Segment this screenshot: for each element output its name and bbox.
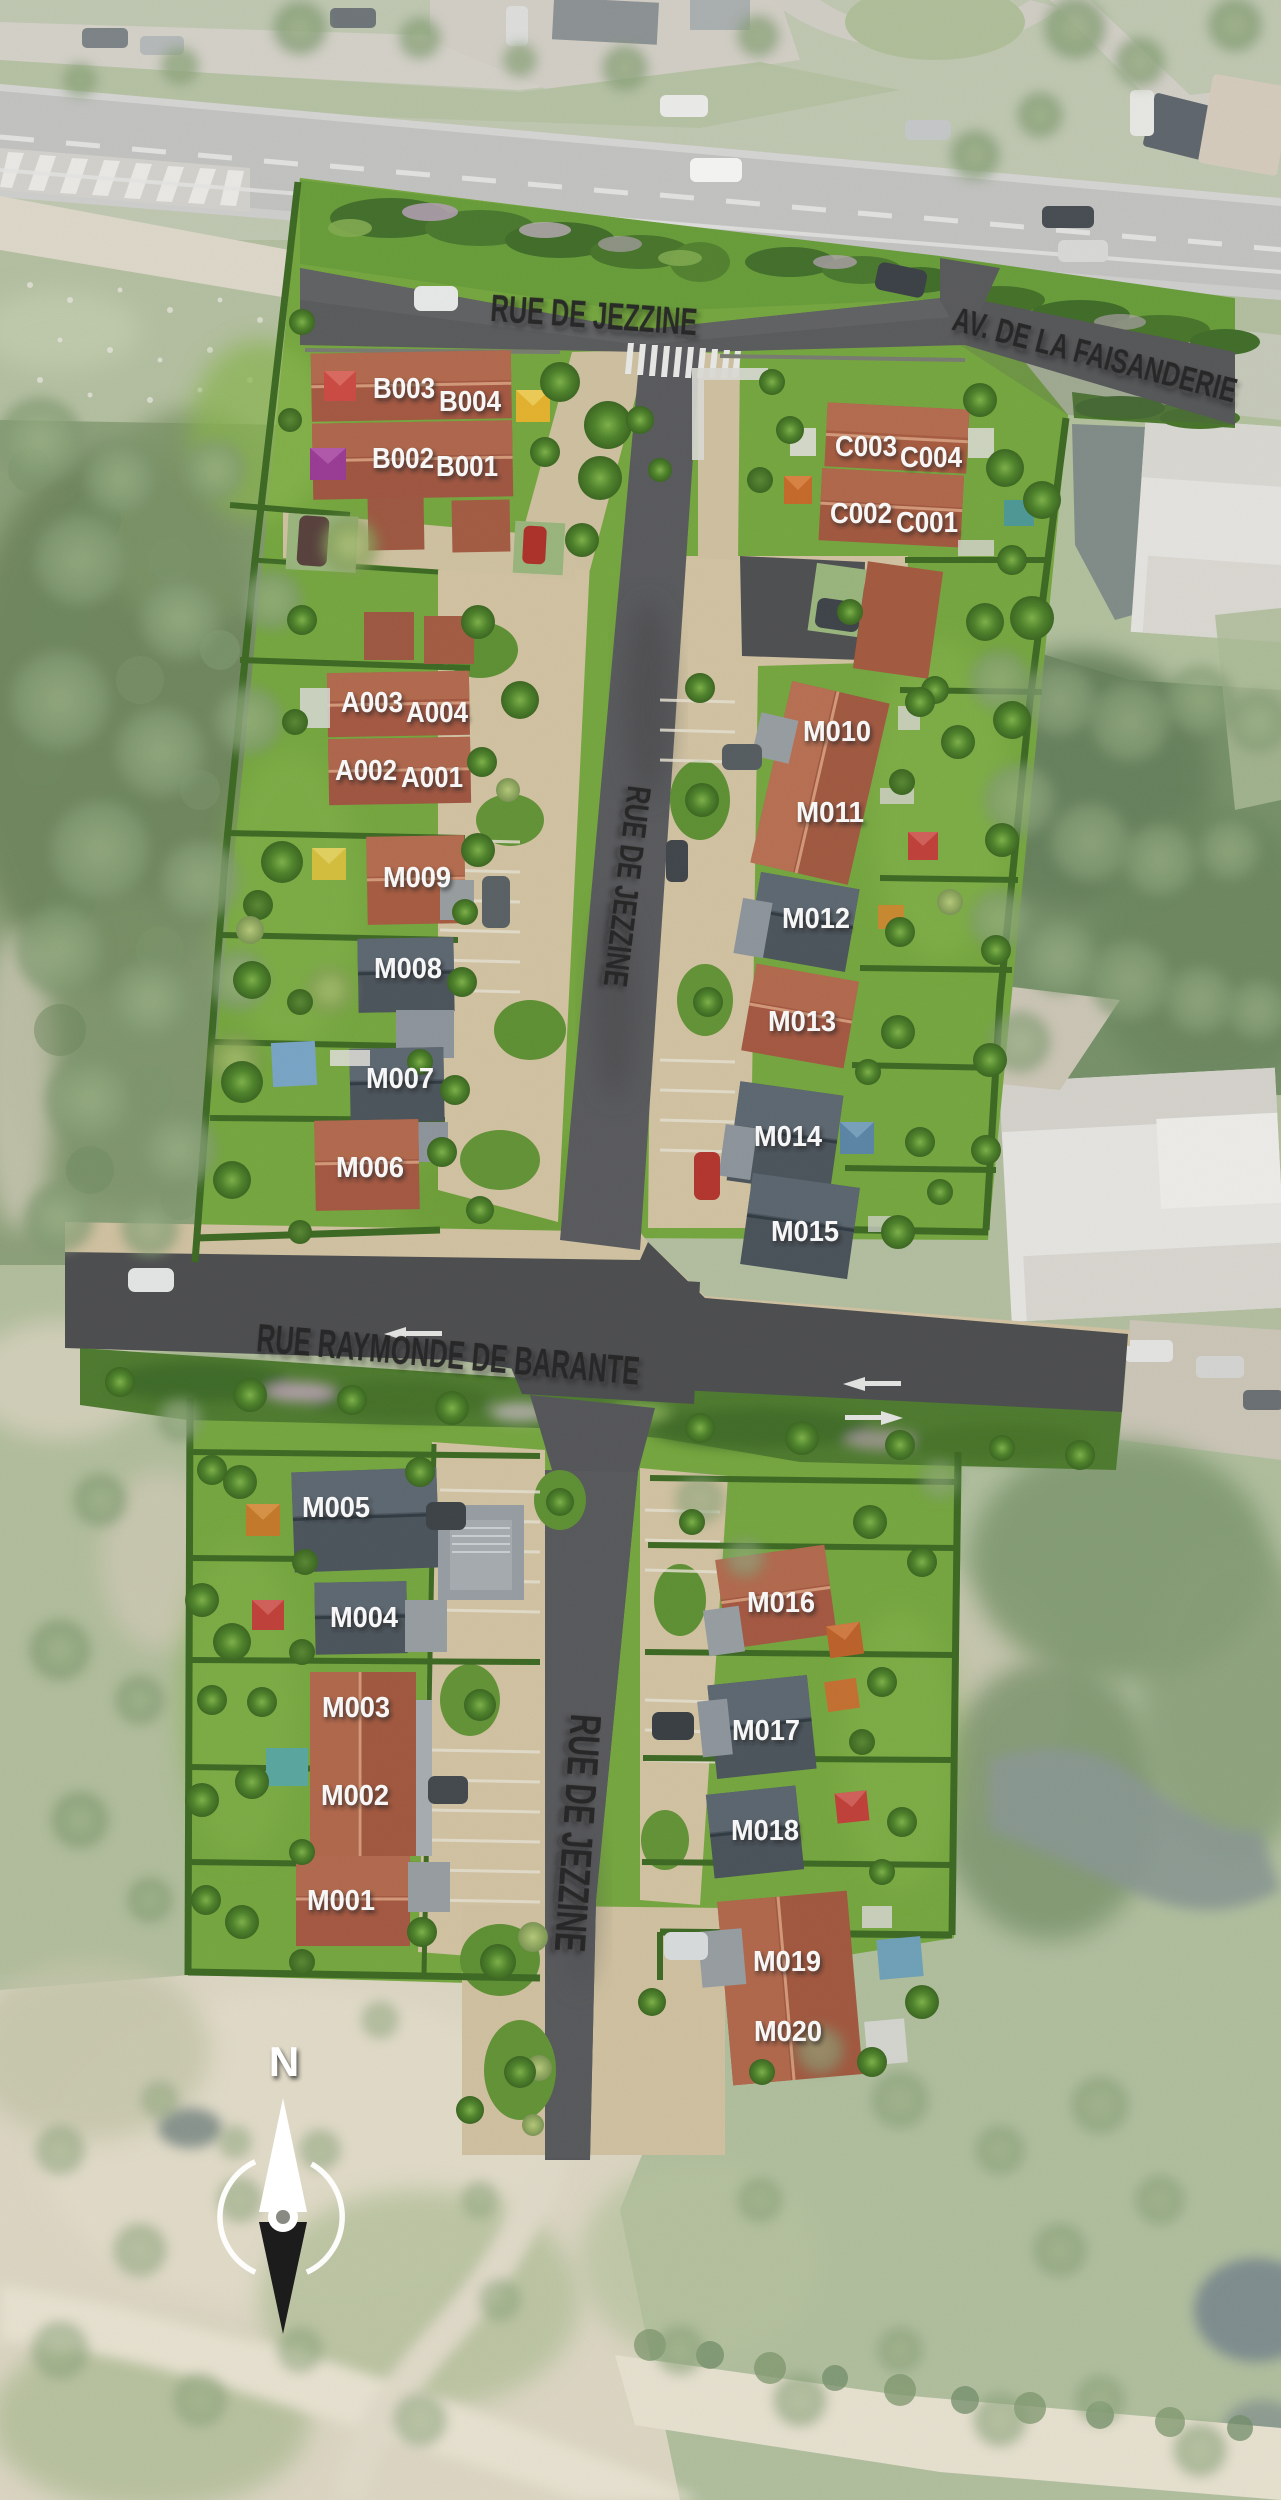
svg-text:N: N [269, 2038, 299, 2085]
